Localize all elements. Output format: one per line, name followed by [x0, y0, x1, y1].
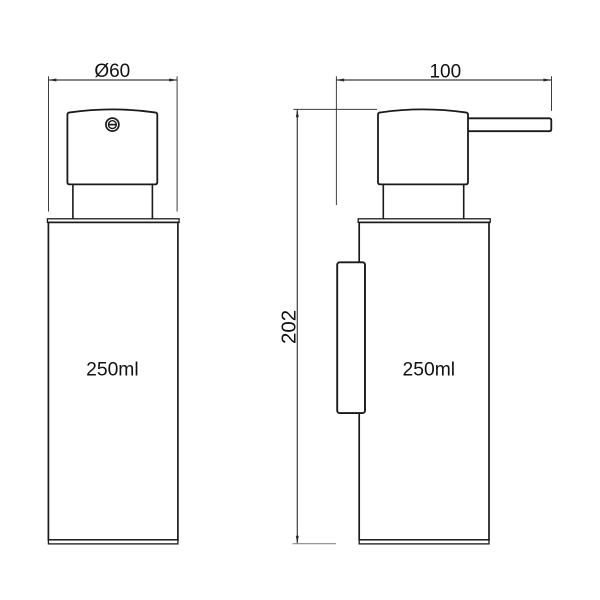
svg-text:250ml: 250ml — [86, 359, 139, 380]
svg-text:Ø60: Ø60 — [94, 61, 130, 82]
svg-text:250ml: 250ml — [403, 359, 456, 380]
svg-text:202: 202 — [277, 310, 300, 344]
svg-text:100: 100 — [429, 61, 461, 82]
